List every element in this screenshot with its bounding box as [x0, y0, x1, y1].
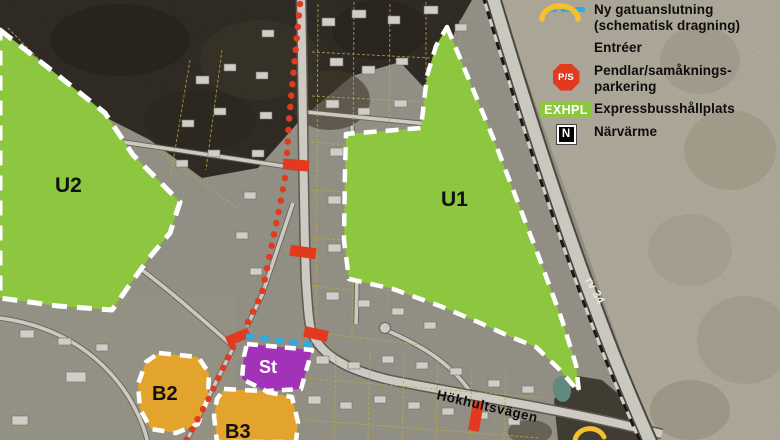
legend-item-entrances: Entréer	[538, 40, 776, 56]
legend-label: Pendlar/samåknings-parkering	[594, 63, 760, 95]
ps-octagon-icon: P/S	[538, 63, 594, 91]
ps-badge: P/S	[553, 64, 580, 91]
exhpl-box-icon: EXHPL	[538, 101, 594, 118]
n-badge: N	[557, 125, 576, 144]
zone-label-b3: B3	[225, 421, 251, 440]
legend-label: Entréer	[594, 40, 642, 56]
zone-label-u1: U1	[441, 188, 468, 211]
entrance-arc-icon	[538, 40, 594, 41]
legend-item-district-heating: N Närvärme	[538, 124, 776, 144]
legend-item-express-bus-stop: EXHPL Expressbusshållplats	[538, 101, 776, 118]
legend-label: Närvärme	[594, 124, 657, 140]
exhpl-badge: EXHPL	[540, 102, 592, 118]
planning-map-screenshot: U2 U1 B2 B3 St Hökhultsvägen rv 34 Ny ga…	[0, 0, 780, 440]
zone-label-b2: B2	[152, 383, 178, 405]
n-square-icon: N	[538, 124, 594, 144]
zone-label-u2: U2	[55, 174, 82, 197]
legend-label: Ny gatuanslutning (schematisk dragning)	[594, 2, 760, 34]
map-legend: Ny gatuanslutning (schematisk dragning) …	[538, 2, 776, 144]
zone-label-st: St	[259, 357, 277, 377]
legend-item-commuter-parking: P/S Pendlar/samåknings-parkering	[538, 63, 776, 95]
legend-label: Expressbusshållplats	[594, 101, 735, 117]
